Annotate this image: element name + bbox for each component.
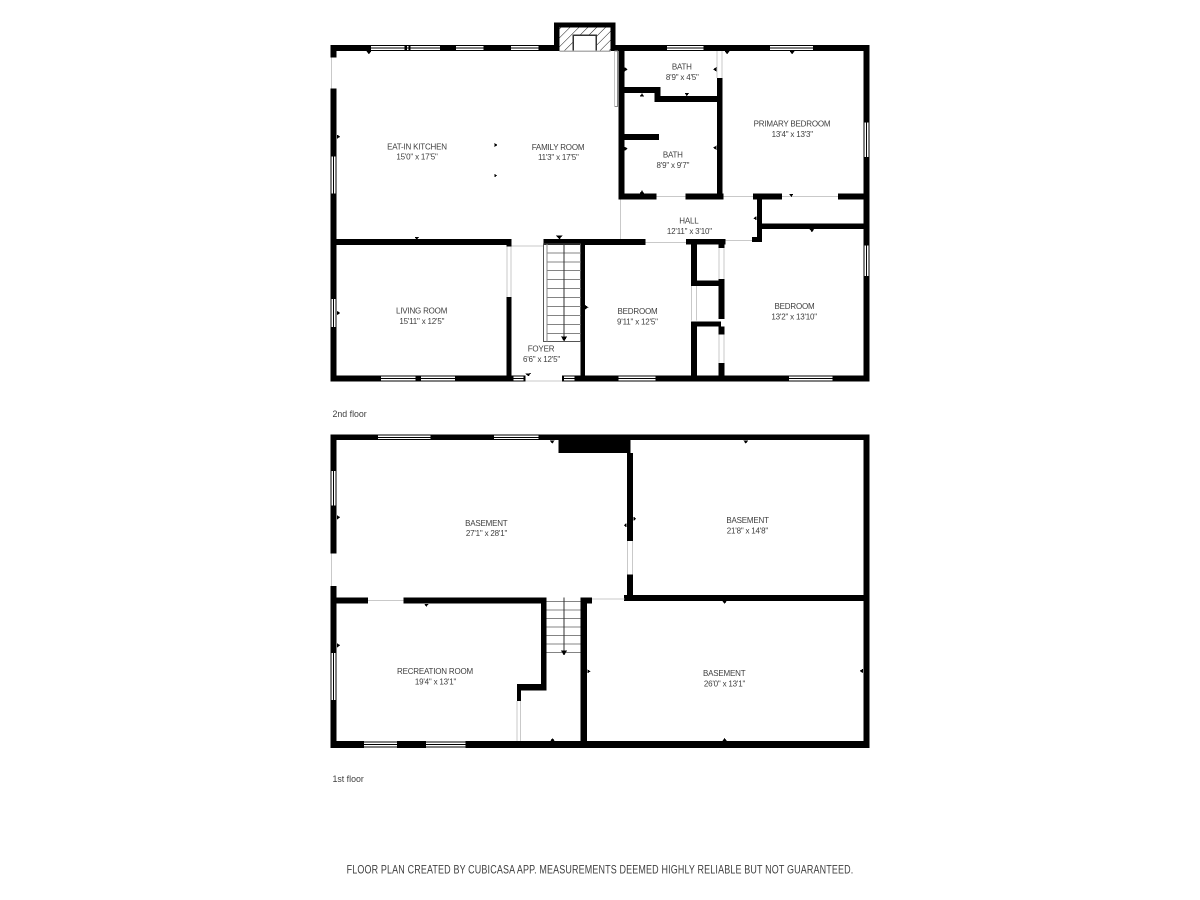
svg-text:HALL: HALL <box>679 216 699 225</box>
svg-text:BATH: BATH <box>672 63 692 72</box>
svg-text:13'2" x 13'10": 13'2" x 13'10" <box>771 312 817 321</box>
svg-text:EAT-IN KITCHEN: EAT-IN KITCHEN <box>387 142 447 151</box>
svg-text:FLOOR PLAN CREATED BY CUBICASA: FLOOR PLAN CREATED BY CUBICASA APP. MEAS… <box>347 864 854 876</box>
svg-text:19'4" x 13'1": 19'4" x 13'1" <box>415 677 457 686</box>
svg-text:BASEMENT: BASEMENT <box>726 516 769 525</box>
svg-text:26'0" x 13'1": 26'0" x 13'1" <box>704 680 746 689</box>
svg-text:27'1" x 28'1": 27'1" x 28'1" <box>466 529 508 538</box>
svg-text:21'8" x 14'8": 21'8" x 14'8" <box>727 526 769 535</box>
svg-text:BEDROOM: BEDROOM <box>618 307 658 316</box>
svg-text:9'11" x 12'5": 9'11" x 12'5" <box>617 317 658 326</box>
svg-text:BEDROOM: BEDROOM <box>775 302 815 311</box>
svg-text:FAMILY ROOM: FAMILY ROOM <box>532 143 585 152</box>
svg-text:PRIMARY BEDROOM: PRIMARY BEDROOM <box>754 120 831 129</box>
svg-text:BASEMENT: BASEMENT <box>703 669 746 678</box>
svg-text:11'3" x 17'5": 11'3" x 17'5" <box>538 153 579 162</box>
svg-text:FOYER: FOYER <box>528 345 555 354</box>
svg-text:12'11" x 3'10": 12'11" x 3'10" <box>667 227 712 236</box>
svg-text:2nd floor: 2nd floor <box>333 409 367 419</box>
svg-text:8'9" x 9'7": 8'9" x 9'7" <box>657 161 690 170</box>
svg-text:BASEMENT: BASEMENT <box>465 519 508 528</box>
svg-text:1st floor: 1st floor <box>333 774 364 784</box>
svg-text:LIVING ROOM: LIVING ROOM <box>396 307 448 316</box>
svg-text:6'6" x 12'5": 6'6" x 12'5" <box>523 355 560 364</box>
svg-text:15'0" x 17'5": 15'0" x 17'5" <box>396 153 438 162</box>
svg-text:RECREATION ROOM: RECREATION ROOM <box>397 667 474 676</box>
svg-text:BATH: BATH <box>663 151 683 160</box>
svg-text:13'4" x 13'3": 13'4" x 13'3" <box>772 130 814 139</box>
svg-text:15'11" x 12'5": 15'11" x 12'5" <box>399 317 444 326</box>
svg-text:8'9" x 4'5": 8'9" x 4'5" <box>666 73 699 82</box>
